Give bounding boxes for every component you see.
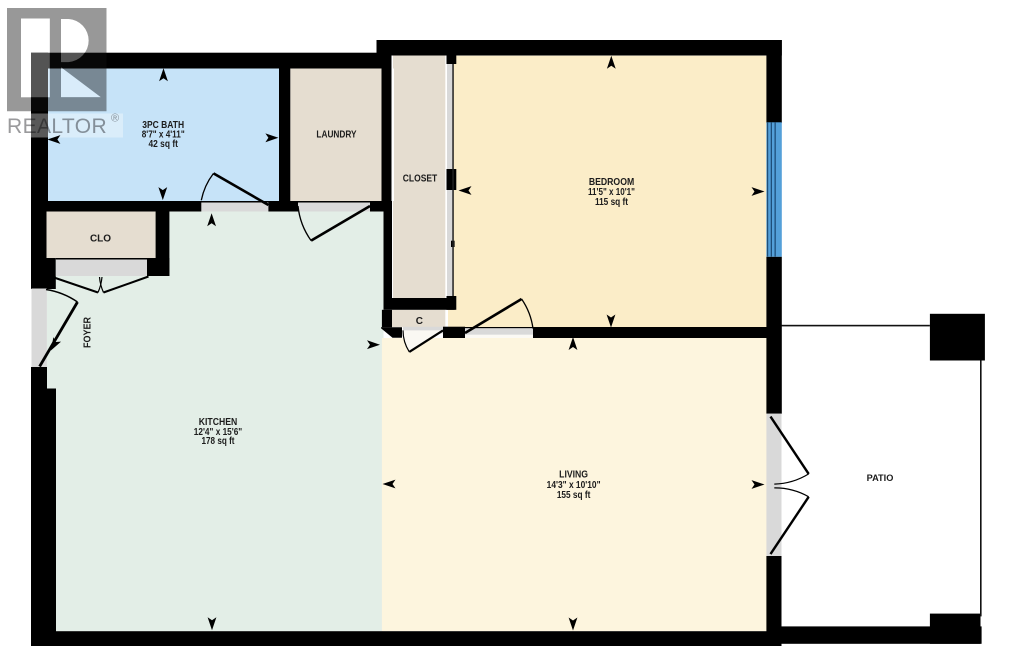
svg-text:155 sq ft: 155 sq ft xyxy=(557,489,591,500)
svg-text:42 sq ft: 42 sq ft xyxy=(148,138,177,149)
svg-text:178 sq ft: 178 sq ft xyxy=(202,435,235,446)
svg-text:REALTOR: REALTOR xyxy=(7,115,107,138)
svg-text:CLOSET: CLOSET xyxy=(403,173,438,184)
svg-text:CLO: CLO xyxy=(90,234,111,245)
svg-text:C: C xyxy=(416,316,423,327)
svg-text:115 sq ft: 115 sq ft xyxy=(595,196,628,207)
svg-text:®: ® xyxy=(111,113,119,125)
svg-text:LIVING: LIVING xyxy=(559,469,588,480)
svg-text:FOYER: FOYER xyxy=(82,317,94,348)
svg-text:LAUNDRY: LAUNDRY xyxy=(316,129,356,140)
svg-text:PATIO: PATIO xyxy=(867,473,894,483)
